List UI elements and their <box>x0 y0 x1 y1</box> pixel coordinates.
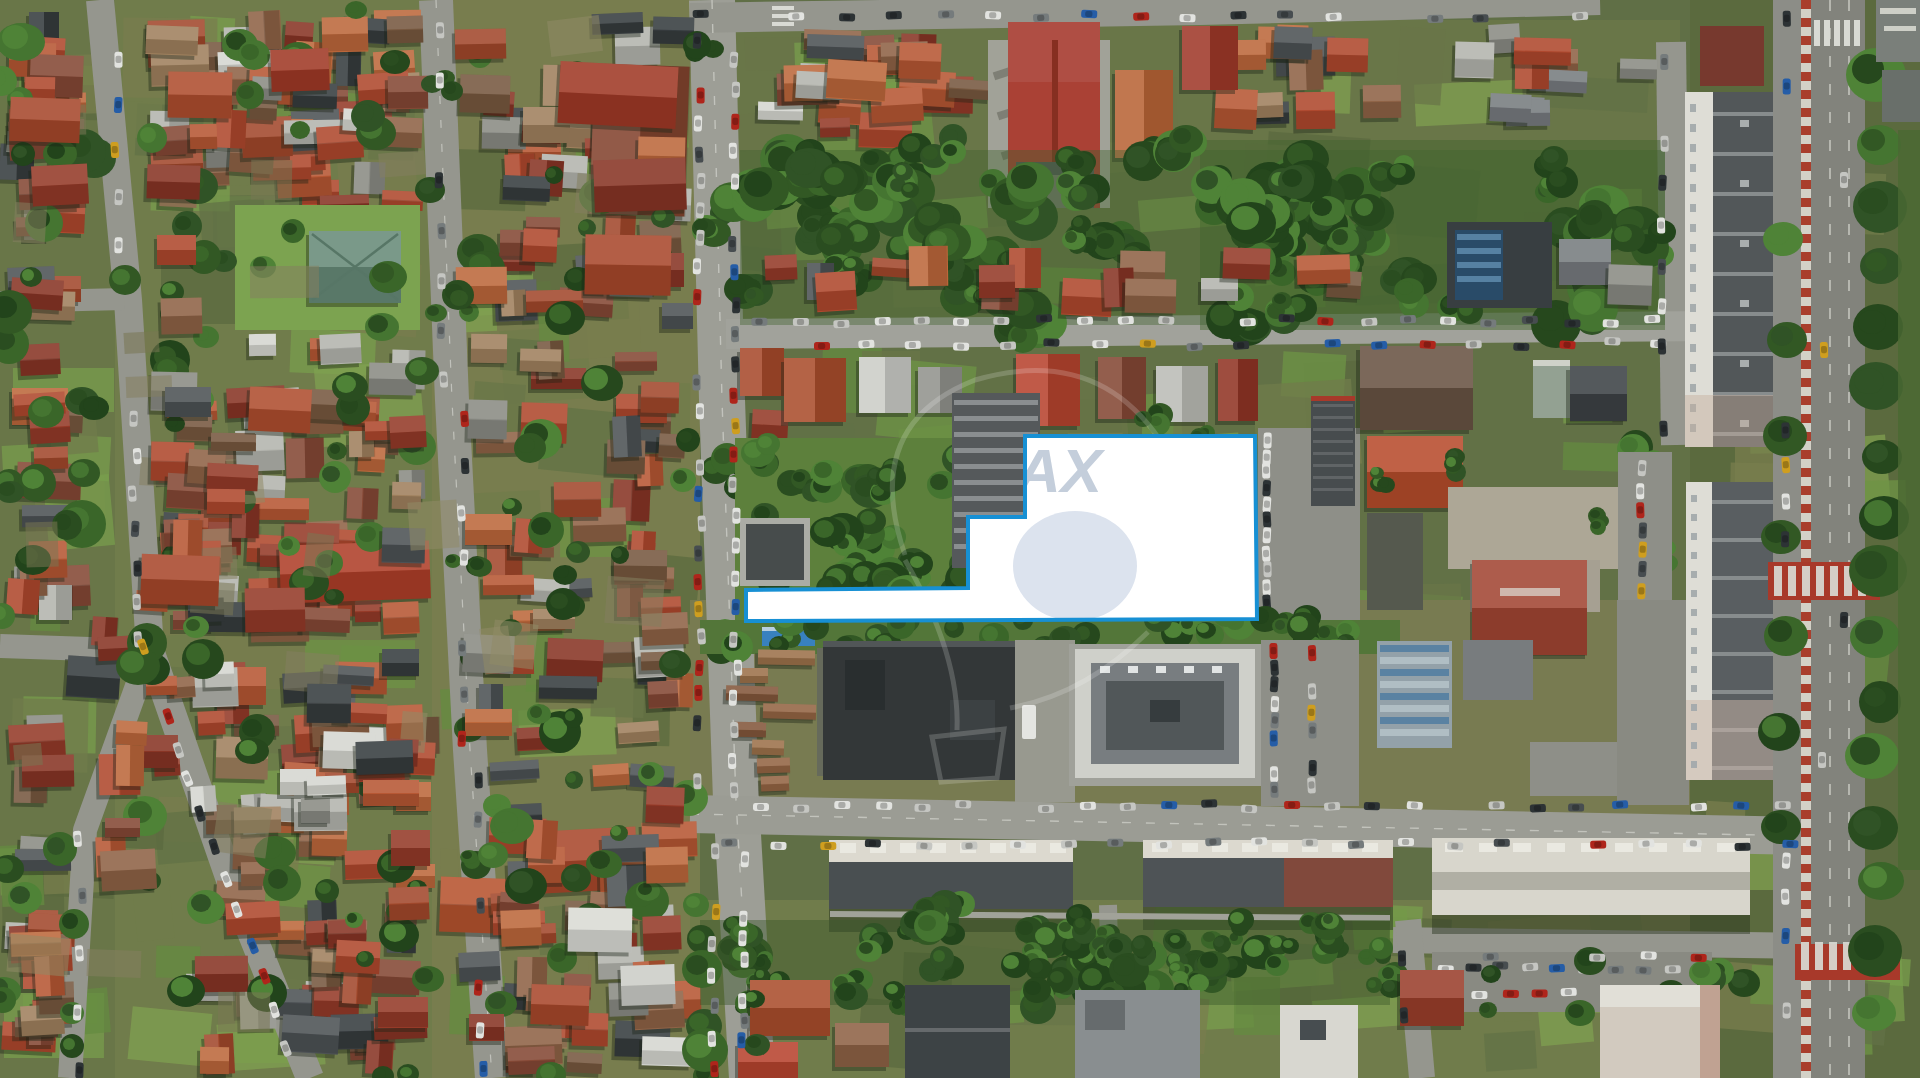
svg-text:AX: AX <box>1014 436 1106 505</box>
